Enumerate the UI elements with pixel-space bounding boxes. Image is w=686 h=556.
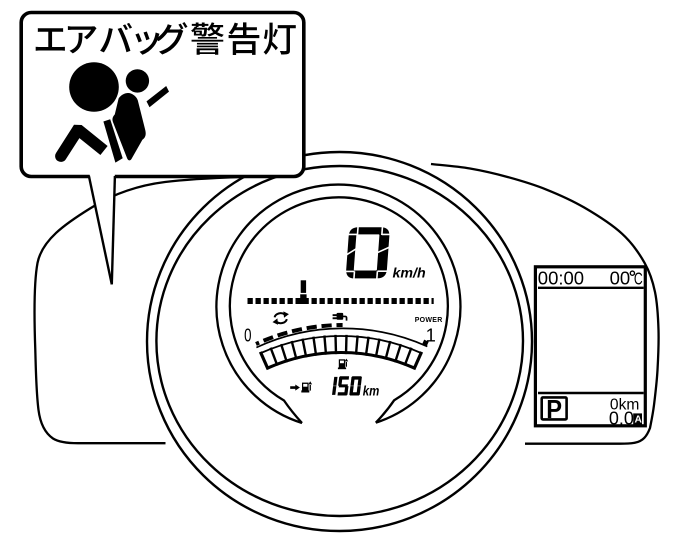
svg-text:0: 0 <box>244 325 251 346</box>
svg-text:C: C <box>634 270 643 290</box>
svg-text:0.0: 0.0 <box>609 409 634 429</box>
svg-text:km: km <box>363 384 380 399</box>
svg-text:00: 00 <box>610 268 631 289</box>
svg-text:00:00: 00:00 <box>538 268 584 289</box>
svg-text:km/h: km/h <box>393 266 426 282</box>
svg-text:P: P <box>546 396 562 424</box>
svg-text:POWER: POWER <box>415 317 443 324</box>
svg-text:A: A <box>635 415 643 426</box>
